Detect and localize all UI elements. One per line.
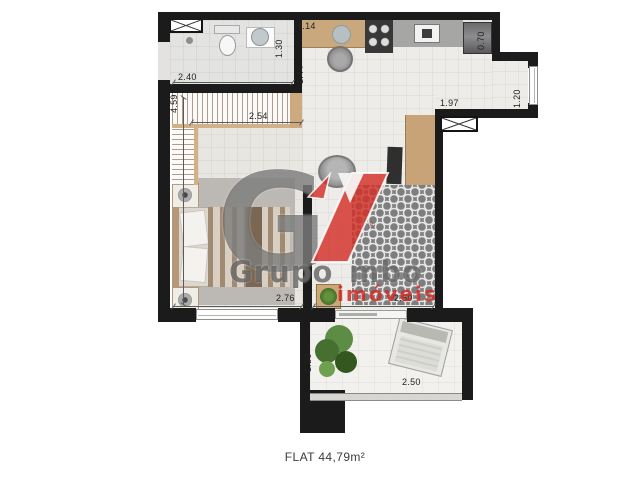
duct-box-icon bbox=[440, 116, 478, 132]
toilet bbox=[219, 35, 236, 56]
stove bbox=[365, 20, 393, 53]
washer-box-icon bbox=[169, 18, 203, 33]
bathroom-sink bbox=[251, 28, 269, 46]
wall-bathroom-bottom bbox=[166, 84, 302, 93]
balcony-sliding-door bbox=[335, 310, 407, 319]
dim-bathroom-width: 2.40 bbox=[178, 72, 197, 82]
dim-kitchen-left-depth: 1.44 bbox=[295, 65, 305, 84]
wall-left-recess bbox=[158, 42, 170, 80]
dimension-line bbox=[183, 97, 184, 305]
sink-basin bbox=[422, 29, 432, 38]
dim-kitchen-top: 4.14 bbox=[297, 21, 316, 31]
nightstand bbox=[172, 182, 199, 209]
chair-seat bbox=[395, 336, 443, 372]
dimension-line bbox=[173, 306, 302, 307]
balcony-railing bbox=[310, 393, 462, 401]
entry-nook-floor bbox=[492, 58, 528, 110]
wall-balcony-right bbox=[462, 316, 473, 400]
registered-mark: ® bbox=[368, 220, 375, 230]
dim-closet-run: 2.54 bbox=[249, 111, 268, 121]
watermark-subtitle: imóveis bbox=[337, 282, 438, 306]
dim-left-wall: 4.59 bbox=[169, 94, 179, 113]
dimension-line bbox=[313, 306, 434, 307]
shower-drain-icon bbox=[186, 37, 193, 44]
bar-stool bbox=[327, 46, 353, 72]
dim-bathroom-depth: 1.30 bbox=[274, 39, 284, 58]
dim-balcony-depth: 1.50 bbox=[303, 353, 313, 372]
dim-balcony-width: 2.50 bbox=[402, 377, 421, 387]
dim-entry-recess: 0.69 bbox=[502, 52, 521, 62]
plan-caption: FLAT 44,79m² bbox=[160, 450, 490, 464]
lamp-icon bbox=[178, 188, 192, 202]
entry-window bbox=[529, 66, 538, 105]
floor-plan: 4.14 1.30 2.40 1.44 4.59 2.54 0.70 0.69 … bbox=[0, 0, 640, 480]
closet-side-run bbox=[172, 128, 198, 185]
dimension-line bbox=[173, 82, 293, 83]
bedroom-window bbox=[196, 309, 278, 320]
kitchen-sink bbox=[414, 24, 440, 43]
dim-entry-wall: 1.97 bbox=[440, 98, 459, 108]
counter-basin bbox=[332, 25, 351, 44]
balcony-plant-icon bbox=[315, 325, 367, 383]
dim-entry-window: 1.20 bbox=[512, 89, 522, 108]
wall-top bbox=[158, 12, 500, 20]
bed-headboard bbox=[172, 207, 179, 287]
wall-bottom-left bbox=[158, 308, 196, 322]
toilet-tank bbox=[214, 25, 240, 34]
dimension-line bbox=[191, 122, 302, 123]
dim-fridge: 0.70 bbox=[476, 31, 486, 50]
watermark-word-1: Grupo bbox=[229, 255, 333, 289]
